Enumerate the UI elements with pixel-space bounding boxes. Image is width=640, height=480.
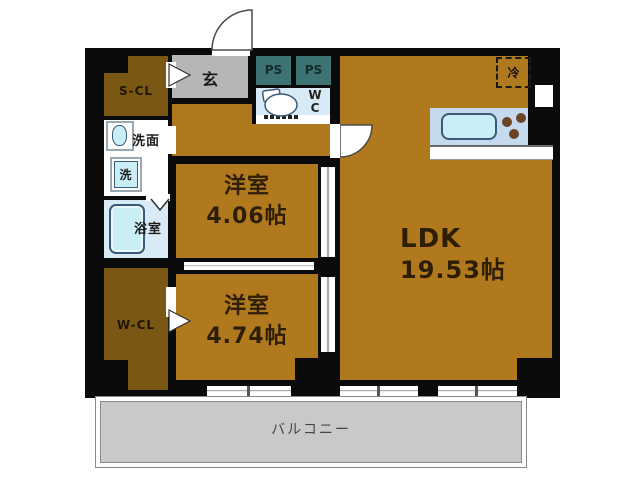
senmen-door-gap <box>166 126 176 154</box>
room-ps1: PS <box>256 56 291 85</box>
sliding-door-western1-ldk <box>321 167 335 257</box>
sliding-door-western2-ldk <box>321 277 335 352</box>
fridge-label: 冷 <box>507 64 519 81</box>
hallway <box>172 104 252 156</box>
counter-step <box>430 145 553 160</box>
pillar-mid-bottom <box>295 358 335 398</box>
genkan-label: 玄 <box>172 66 248 90</box>
hallway-east <box>252 124 330 156</box>
ldk-door-arc-icon <box>340 124 376 160</box>
window-western2-mullion <box>247 386 250 396</box>
folding-door-icon <box>149 197 171 213</box>
window-ldk-2-mullion <box>475 386 478 396</box>
wcl-label: W-CL <box>104 318 168 332</box>
room-ldk-bottom <box>340 358 517 380</box>
balcony: バルコニー <box>95 396 527 468</box>
senmen-label: 洗面 <box>132 130 160 149</box>
wc-label-line2: C <box>305 102 325 115</box>
refrigerator-dashed-box: 冷 <box>496 57 531 88</box>
ldk-labels: LDK 19.53帖 <box>400 224 506 286</box>
wc-label: W C <box>305 89 325 115</box>
entrance-door-arc-icon <box>210 8 254 52</box>
scl-label: S-CL <box>104 84 168 98</box>
stove-burners-icon <box>500 112 530 142</box>
western2-name: 洋室 <box>176 292 318 322</box>
balcony-label: バルコニー <box>96 419 526 439</box>
washbasin-icon <box>106 121 134 151</box>
western1-area: 4.06帖 <box>176 202 318 232</box>
western1-name: 洋室 <box>176 172 318 202</box>
western1-labels: 洋室 4.06帖 <box>176 172 318 232</box>
pillar-bottom-left <box>85 360 128 398</box>
ldk-name: LDK <box>400 224 506 255</box>
ps2-label: PS <box>296 56 331 85</box>
western2-labels: 洋室 4.74帖 <box>176 292 318 352</box>
room-ps2: PS <box>296 56 331 85</box>
bath-label: 浴室 <box>134 218 162 237</box>
ldk-area: 19.53帖 <box>400 255 506 286</box>
toilet-icon <box>258 88 306 120</box>
kitchen-sink-icon <box>441 113 497 140</box>
window-right-wall <box>535 85 553 107</box>
washing-machine-icon: 洗 <box>110 157 142 192</box>
floorplan-canvas: PS PS <box>0 0 640 480</box>
ps1-label: PS <box>256 56 291 85</box>
western2-area: 4.74帖 <box>176 322 318 352</box>
washer-label: 洗 <box>119 166 132 183</box>
sliding-door-between-westerns <box>184 262 314 270</box>
window-ldk-1-mullion <box>377 386 380 396</box>
